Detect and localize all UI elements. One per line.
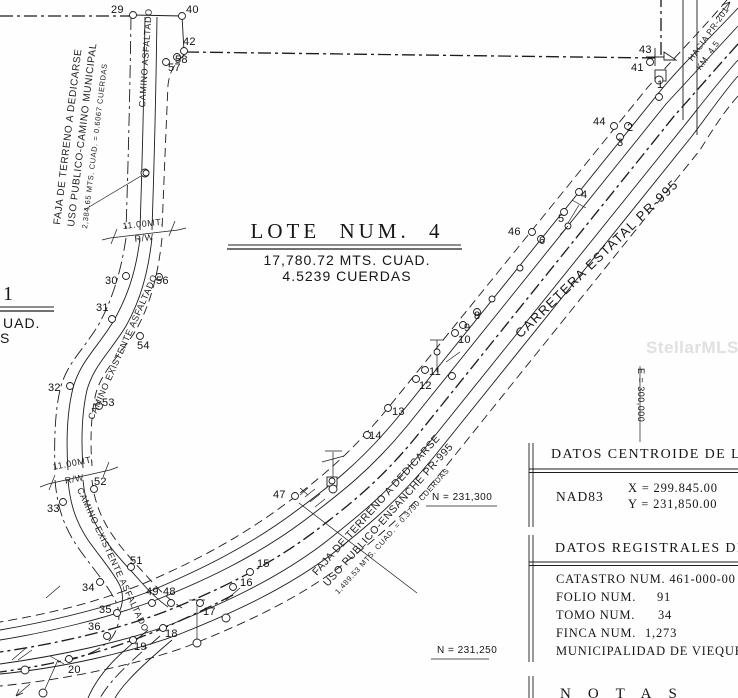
- survey-point-label: 14: [369, 430, 382, 442]
- survey-point-label: 12: [419, 380, 432, 392]
- survey-point-label: 17: [203, 606, 216, 618]
- finca-label: FINCA NUM.: [556, 626, 645, 641]
- survey-point-label: 6: [539, 235, 545, 247]
- adjacent-lot-title-fragment: 1: [3, 283, 16, 306]
- survey-point-label: 53: [102, 397, 115, 409]
- survey-point-label: 56: [156, 275, 169, 287]
- catastro-value: 461-000-00: [669, 572, 735, 586]
- lot-title: LOTE NUM. 4: [230, 219, 464, 244]
- lot-area-meters: 17,780.72 MTS. CUAD.: [230, 252, 464, 268]
- survey-point-label: 9: [464, 322, 470, 334]
- registrales-finca-row: FINCA NUM.1,273: [556, 626, 677, 641]
- centroide-table-title: DATOS CENTROIDE DE LA: [551, 447, 738, 463]
- survey-point-label: 30: [105, 275, 118, 287]
- survey-point-label: 41: [631, 62, 644, 74]
- survey-point-label: 48: [163, 586, 176, 598]
- centroide-datum: NAD83: [556, 489, 604, 505]
- survey-point-label: 35: [99, 604, 112, 616]
- centroide-y-value: Y = 231,850.00: [628, 497, 717, 512]
- folio-label: FOLIO NUM.: [556, 590, 657, 605]
- survey-point-label: 43: [639, 44, 652, 56]
- survey-point-label: 36: [88, 621, 101, 633]
- survey-point-label: 44: [593, 116, 606, 128]
- tomo-value: 34: [658, 608, 672, 622]
- adjacent-lot-area-fragment-2: S: [0, 330, 10, 346]
- tomo-label: TOMO NUM.: [556, 608, 658, 623]
- survey-point-label: 33: [47, 503, 60, 515]
- grid-north-upper-label: N = 231,300: [432, 492, 492, 503]
- adjacent-lot-area-fragment: UAD.: [3, 315, 40, 331]
- registrales-catastro-row: CATASTRO NUM. 461-000-00: [556, 572, 736, 587]
- survey-point-label: 11: [429, 366, 441, 378]
- watermark: StellarMLS: [646, 338, 738, 358]
- survey-point-label: 3: [617, 137, 623, 149]
- survey-point-label: 13: [392, 406, 405, 418]
- survey-point-label: 47: [273, 489, 286, 501]
- survey-plat-canvas: StellarMLS LOTE NUM. 4 17,780.72 MTS. CU…: [0, 0, 738, 698]
- grid-north-lower-label: N = 231,250: [437, 645, 497, 656]
- survey-point-label: 29: [111, 4, 124, 16]
- survey-point-label: 42: [183, 36, 196, 48]
- folio-value: 91: [657, 590, 671, 604]
- survey-point-label: 46: [508, 226, 521, 238]
- survey-point-label: 18: [165, 628, 178, 640]
- registrales-folio-row: FOLIO NUM.91: [556, 590, 671, 605]
- survey-point-label: 16: [240, 577, 253, 589]
- survey-point-label: 2: [627, 122, 633, 134]
- survey-point-label: 31: [96, 302, 109, 314]
- survey-point-label: 19: [134, 641, 147, 653]
- registrales-tomo-row: TOMO NUM.34: [556, 608, 672, 623]
- grid-east-label: E = 300,000: [636, 368, 646, 422]
- notas-title: NOTAS: [560, 686, 694, 698]
- survey-point-label: 15: [257, 558, 270, 570]
- survey-point-label: 52: [94, 476, 107, 488]
- survey-point-label: 32: [48, 382, 61, 394]
- centroide-x-value: X = 299.845.00: [628, 481, 718, 496]
- survey-point-label: 57: [168, 62, 181, 74]
- survey-point-label: 49: [146, 586, 159, 598]
- survey-point-label: 20: [68, 664, 81, 676]
- registrales-municipio-row: MUNICIPALIDAD DE VIEQUES: [556, 644, 738, 659]
- survey-point-label: 10: [458, 334, 471, 346]
- catastro-label: CATASTRO NUM.: [556, 572, 665, 586]
- lot-area-cuerdas: 4.5239 CUERDAS: [230, 268, 464, 284]
- survey-point-label: 4: [581, 189, 587, 201]
- survey-point-label: 54: [137, 340, 150, 352]
- survey-point-label: 40: [186, 4, 199, 16]
- rw-label-top: R/W: [134, 232, 154, 244]
- survey-point-label: 51: [130, 555, 143, 567]
- registrales-table-title: DATOS REGISTRALES DE: [555, 541, 738, 557]
- survey-point-label: 34: [82, 582, 95, 594]
- survey-point-label: 5: [558, 213, 564, 225]
- finca-value: 1,273: [645, 626, 677, 640]
- survey-point-label: 8: [474, 310, 480, 322]
- survey-point-label: 1: [657, 79, 663, 91]
